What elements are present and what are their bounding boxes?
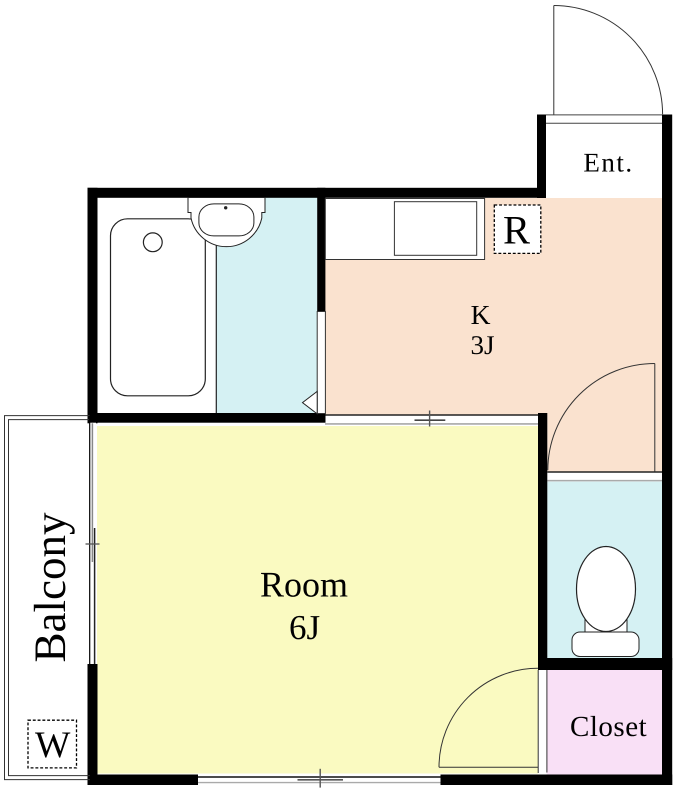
svg-text:Room: Room — [260, 565, 348, 605]
svg-text:3J: 3J — [470, 330, 494, 360]
svg-text:R: R — [503, 208, 530, 253]
svg-text:Balcony: Balcony — [25, 512, 75, 662]
svg-text:Ent.: Ent. — [583, 148, 633, 178]
svg-text:W: W — [35, 725, 71, 766]
svg-text:Closet: Closet — [570, 711, 647, 743]
svg-text:6J: 6J — [289, 608, 320, 647]
svg-text:K: K — [471, 299, 491, 330]
